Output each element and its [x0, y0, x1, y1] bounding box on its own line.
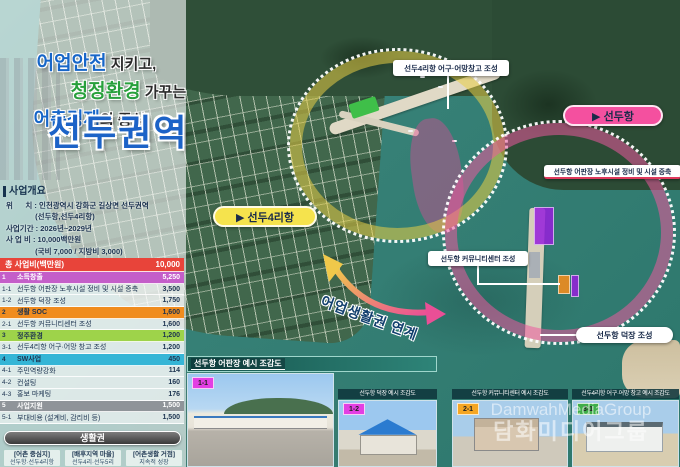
budget-cell-no: 4-2	[0, 379, 17, 386]
budget-cell-value: 3,500	[148, 286, 184, 293]
budget-table-header: 총 사업비(백만원) 10,000	[0, 258, 184, 272]
budget-cell-label: 컨설팅	[17, 378, 148, 388]
budget-cell-value: 5,250	[148, 274, 184, 281]
budget-cell-value: 1,500	[148, 414, 184, 421]
overview-lines: 위 치 : 인천광역시 강화군 길상면 선두권역 (선두항,선두4리항) 사업기…	[6, 200, 184, 257]
label-seondu4rihang: ▶ 선두4리항	[213, 206, 317, 227]
example-header-deokjang: 선두항 덕장 예시 조감도	[338, 389, 437, 399]
budget-row-1: 1소득창출5,250	[0, 272, 184, 284]
label-seonduhang: ▶ 선두항	[563, 105, 663, 126]
label-fishmarket: 선두항 어판장 노후시설 정비 및 시설 증축	[544, 165, 680, 179]
budget-cell-label: 선두항 어판장 노후시설 정비 및 시설 증축	[17, 284, 148, 294]
budget-cell-value: 160	[148, 379, 184, 386]
budget-cell-label: 홍보 마케팅	[17, 389, 148, 399]
living-box-sub: 선두4리·선두5리	[65, 459, 121, 467]
budget-cell-label: 주민역량강화	[17, 366, 148, 376]
label-warehouse: 선두4리항 어구·어망창고 조성	[393, 60, 509, 76]
living-box-title: [어촌생활 거점]	[126, 451, 182, 459]
connector-line	[477, 266, 479, 283]
budget-cell-no: 2	[0, 309, 17, 316]
connector-line	[540, 334, 576, 336]
living-box-sub: 선두항·선두4리항	[4, 459, 60, 467]
budget-cell-value: 1,200	[148, 332, 184, 339]
budget-header-value: 10,000	[148, 260, 184, 269]
living-zone-box: [어촌생활 거점] 지속적 성장	[125, 449, 183, 467]
budget-cell-value: 114	[148, 367, 184, 374]
budget-row-4-2: 4-2컨설팅160	[0, 377, 184, 389]
facility-highlight-orange	[558, 275, 570, 294]
budget-cell-no: 4-3	[0, 391, 17, 398]
example-header-warehouse: 선두4리항 어구·어망 창고 예시 조감도	[572, 389, 679, 399]
budget-cell-value: 1,500	[148, 402, 184, 409]
budget-row-4: 4SW사업450	[0, 354, 184, 366]
budget-row-2: 2생활 SOC1,600	[0, 307, 184, 319]
page-title: 선두권역	[48, 104, 188, 156]
living-zone-heading: 생활권	[4, 431, 181, 445]
budget-cell-label: 사업지원	[17, 401, 148, 411]
tag-2-1: 2-1	[457, 403, 479, 415]
budget-row-1-2: 1-2선두항 덕장 조성1,750	[0, 295, 184, 307]
overview-line: 위 치 : 인천광역시 강화군 길상면 선두권역	[6, 200, 184, 211]
budget-cell-no: 4	[0, 356, 17, 363]
budget-cell-label: 선두항 덕장 조성	[17, 296, 148, 306]
poster: 어업생활권 연계 선두4리항 어구·어망창고 조성 ▶ 선두항 선두항 어판장 …	[0, 0, 680, 467]
budget-cell-label: 부대비용 (설계비, 감리비 등)	[17, 413, 148, 423]
budget-cell-label: 생활 SOC	[17, 307, 148, 317]
budget-row-3-1: 3-1선두4리항 어구·어망 창고 조성1,200	[0, 342, 184, 354]
budget-cell-value: 1,200	[148, 344, 184, 351]
budget-cell-label: 선두항 커뮤니티센터 조성	[17, 319, 148, 329]
overview-line: (선두항,선두4리항)	[6, 211, 184, 222]
budget-row-2-1: 2-1선두항 커뮤니티센터 조성1,600	[0, 319, 184, 331]
budget-cell-value: 1,600	[148, 309, 184, 316]
budget-row-4-1: 4-1주민역량강화114	[0, 366, 184, 378]
budget-cell-value: 1,600	[148, 321, 184, 328]
budget-cell-no: 3-1	[0, 344, 17, 351]
label-deokjang: 선두항 덕장 조성	[576, 327, 673, 343]
living-zone-box: [배후지역 마을] 선두4리·선두5리	[64, 449, 122, 467]
budget-cell-no: 1	[0, 274, 17, 281]
budget-cell-no: 2-1	[0, 321, 17, 328]
connector-line	[447, 76, 449, 109]
budget-row-5-1: 5-1부대비용 (설계비, 감리비 등)1,500	[0, 412, 184, 424]
tag-3-1: 3-1	[577, 403, 599, 415]
budget-row-3: 3정주환경1,200	[0, 330, 184, 342]
facility-highlight-purple	[534, 207, 554, 245]
budget-cell-no: 4-1	[0, 367, 17, 374]
overview-heading: 사업개요	[3, 186, 46, 197]
budget-cell-no: 1-1	[0, 286, 17, 293]
budget-row-5: 5사업지원1,500	[0, 401, 184, 413]
budget-cell-no: 5-1	[0, 414, 17, 421]
example-section-header: 선두항 어판장 예시 조감도	[187, 356, 437, 372]
info-panel: 어업안전 지키고, 청정환경 가꾸는 어촌경제의 중심 선두권역 사업개요 위 …	[0, 0, 186, 467]
budget-row-4-3: 4-3홍보 마케팅176	[0, 389, 184, 401]
living-zone-box: [어촌 중심지] 선두항·선두4리항	[3, 449, 61, 467]
living-zone-boxes: [어촌 중심지] 선두항·선두4리항 [배후지역 마을] 선두4리·선두5리 […	[3, 449, 183, 467]
overview-line: 사업기간 : 2026년~2029년	[6, 223, 184, 234]
budget-cell-no: 1-2	[0, 297, 17, 304]
slogan-rest: 가꾸는	[141, 84, 187, 101]
budget-cell-no: 5	[0, 402, 17, 409]
living-box-sub: 지속적 성장	[126, 459, 182, 467]
budget-cell-value: 176	[148, 391, 184, 398]
budget-cell-value: 1,750	[148, 297, 184, 304]
budget-cell-no: 3	[0, 332, 17, 339]
budget-header-label: 총 사업비(백만원)	[0, 259, 148, 270]
living-box-title: [배후지역 마을]	[65, 451, 121, 459]
budget-cell-label: 선두4리항 어구·어망 창고 조성	[17, 342, 148, 352]
budget-table: 총 사업비(백만원) 10,000 1소득창출5,2501-1선두항 어판장 노…	[0, 258, 184, 424]
example-section-title: 선두항 어판장 예시 조감도	[191, 358, 285, 370]
budget-cell-value: 450	[148, 356, 184, 363]
budget-cell-label: SW사업	[17, 354, 148, 364]
budget-table-body: 1소득창출5,2501-1선두항 어판장 노후시설 정비 및 시설 증축3,50…	[0, 272, 184, 424]
seonduhang-zone-circle	[442, 120, 676, 345]
overview-line: (국비 7,000 / 지방비 3,000)	[6, 246, 184, 257]
living-box-title: [어촌 중심지]	[4, 451, 60, 459]
budget-row-1-1: 1-1선두항 어판장 노후시설 정비 및 시설 증축3,500	[0, 284, 184, 296]
label-community-center: 선두항 커뮤니티센터 조성	[428, 251, 528, 266]
overview-line: 사 업 비 : 10,000백만원	[6, 234, 184, 245]
example-header-community: 선두항 커뮤니티센터 예시 조감도	[452, 389, 568, 399]
budget-cell-label: 소득창출	[17, 272, 148, 282]
tag-1-1: 1-1	[192, 377, 214, 389]
tag-1-2: 1-2	[343, 403, 365, 415]
facility-highlight-purple	[571, 275, 579, 297]
connector-line	[477, 283, 560, 285]
budget-cell-label: 정주환경	[17, 331, 148, 341]
